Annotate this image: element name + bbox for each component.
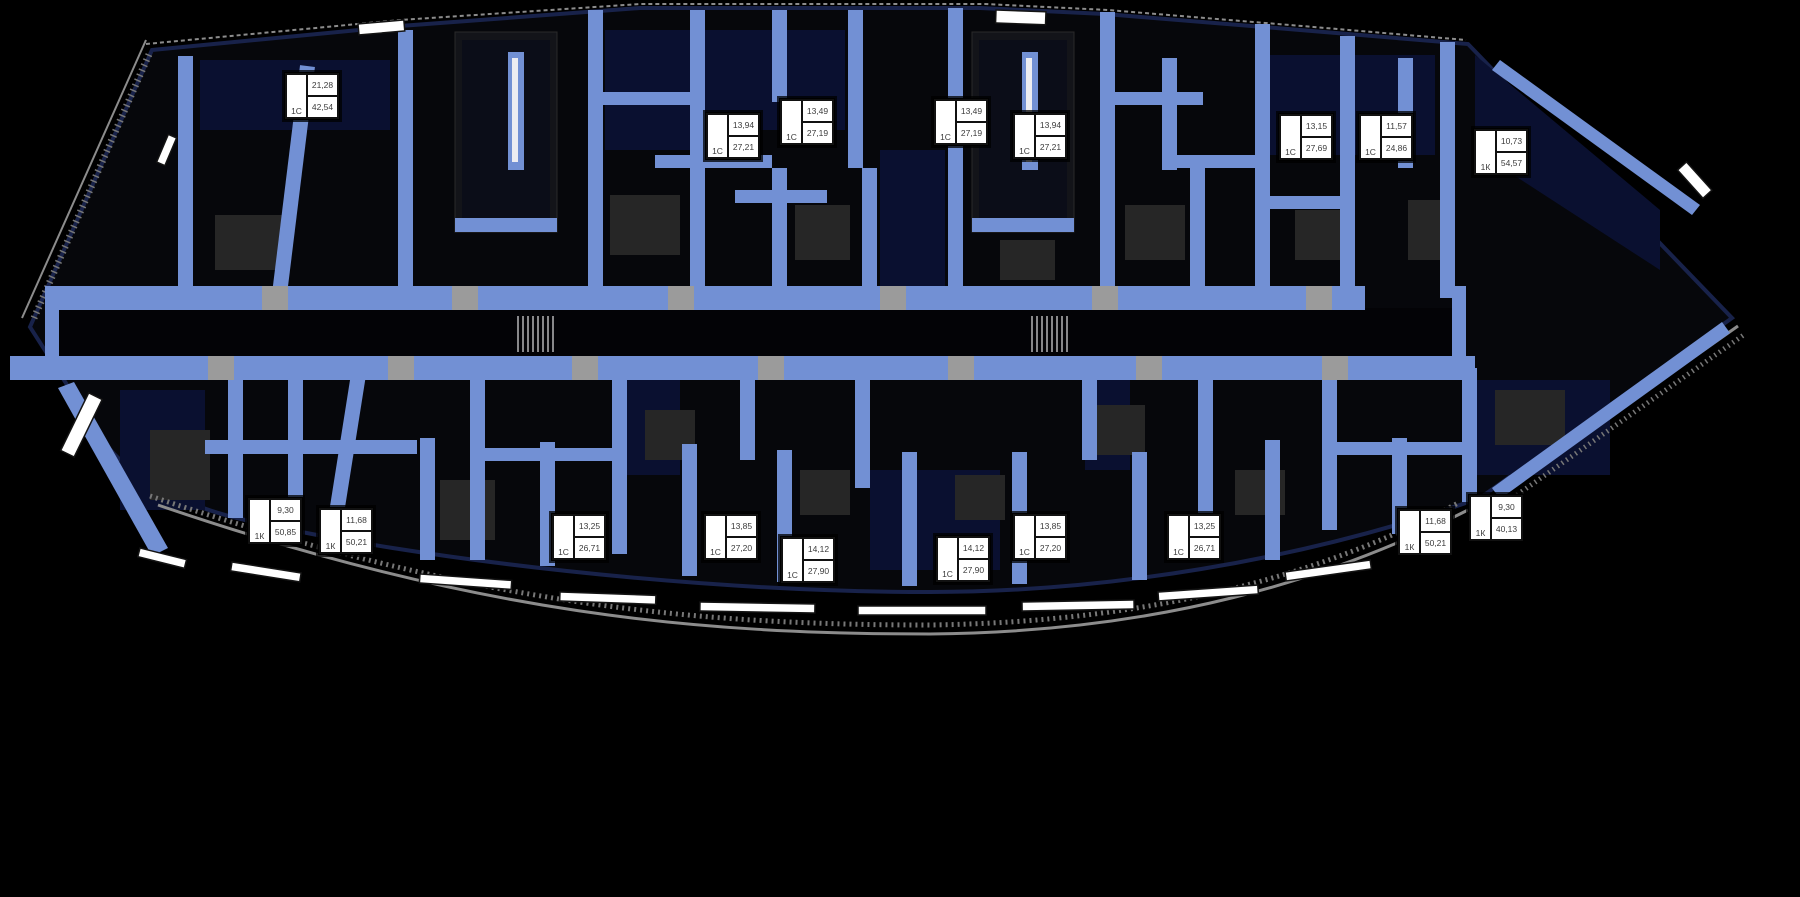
unit-total-area: 26,71	[575, 538, 604, 558]
unit-label[interactable]: 1К 10,73 54,57	[1473, 128, 1529, 176]
unit-type: 1К	[1400, 511, 1419, 553]
unit-total-area: 27,20	[1036, 538, 1065, 558]
unit-room-area: 21,28	[308, 75, 337, 95]
unit-room-area: 13,85	[727, 516, 756, 536]
unit-label[interactable]: 1С 21,28 42,54	[284, 72, 340, 120]
unit-total-area: 27,20	[727, 538, 756, 558]
unit-room-area: 13,94	[1036, 115, 1065, 135]
unit-label[interactable]: 1К 9,30 50,85	[247, 497, 303, 545]
unit-total-area: 26,71	[1190, 538, 1219, 558]
unit-type: 1К	[1471, 497, 1490, 539]
unit-label[interactable]: 1С 13,85 27,20	[703, 513, 759, 561]
unit-type: 1К	[321, 510, 340, 552]
unit-label[interactable]: 1С 14,12 27,90	[935, 535, 991, 583]
unit-room-area: 11,68	[1421, 511, 1450, 531]
unit-label[interactable]: 1С 14,12 27,90	[780, 536, 836, 584]
unit-type: 1С	[554, 516, 573, 558]
unit-label[interactable]: 1К 9,30 40,13	[1468, 494, 1524, 542]
unit-room-area: 13,85	[1036, 516, 1065, 536]
unit-total-area: 27,21	[729, 137, 758, 157]
unit-total-area: 27,90	[959, 560, 988, 580]
unit-room-area: 9,30	[1492, 497, 1521, 517]
unit-type: 1С	[938, 538, 957, 580]
unit-room-area: 13,94	[729, 115, 758, 135]
unit-type: 1С	[1015, 516, 1034, 558]
unit-label[interactable]: 1С 13,49 27,19	[779, 98, 835, 146]
unit-total-area: 27,90	[804, 561, 833, 581]
unit-room-area: 9,30	[271, 500, 300, 520]
unit-label[interactable]: 1К 11,68 50,21	[318, 507, 374, 555]
unit-type: 1К	[250, 500, 269, 542]
unit-type: 1К	[1476, 131, 1495, 173]
unit-type: 1С	[287, 75, 306, 117]
unit-total-area: 27,69	[1302, 138, 1331, 158]
unit-total-area: 40,13	[1492, 519, 1521, 539]
unit-type: 1С	[1015, 115, 1034, 157]
unit-room-area: 10,73	[1497, 131, 1526, 151]
unit-total-area: 54,57	[1497, 153, 1526, 173]
unit-room-area: 14,12	[804, 539, 833, 559]
unit-total-area: 50,85	[271, 522, 300, 542]
unit-label[interactable]: 1С 13,85 27,20	[1012, 513, 1068, 561]
unit-label[interactable]: 1С 13,25 26,71	[1166, 513, 1222, 561]
unit-type: 1С	[1361, 116, 1380, 158]
unit-room-area: 14,12	[959, 538, 988, 558]
unit-total-area: 24,86	[1382, 138, 1411, 158]
unit-total-area: 27,21	[1036, 137, 1065, 157]
unit-type: 1С	[708, 115, 727, 157]
unit-total-area: 27,19	[803, 123, 832, 143]
unit-room-area: 13,15	[1302, 116, 1331, 136]
unit-label[interactable]: 1С 13,15 27,69	[1278, 113, 1334, 161]
floor-plan-canvas: 1С 21,28 42,54 1С 13,94 27,21 1С 13,49 2…	[0, 0, 1800, 897]
unit-label[interactable]: 1С 11,57 24,86	[1358, 113, 1414, 161]
unit-label[interactable]: 1С 13,94 27,21	[705, 112, 761, 160]
unit-type: 1С	[706, 516, 725, 558]
unit-label[interactable]: 1К 11,68 50,21	[1397, 508, 1453, 556]
unit-room-area: 11,68	[342, 510, 371, 530]
unit-label[interactable]: 1С 13,25 26,71	[551, 513, 607, 561]
unit-room-area: 13,25	[1190, 516, 1219, 536]
unit-room-area: 13,49	[957, 101, 986, 121]
unit-type: 1С	[1281, 116, 1300, 158]
unit-room-area: 13,25	[575, 516, 604, 536]
unit-room-area: 11,57	[1382, 116, 1411, 136]
unit-total-area: 42,54	[308, 97, 337, 117]
unit-type: 1С	[782, 101, 801, 143]
unit-labels-layer: 1С 21,28 42,54 1С 13,94 27,21 1С 13,49 2…	[0, 0, 1800, 897]
unit-type: 1С	[936, 101, 955, 143]
unit-type: 1С	[783, 539, 802, 581]
unit-total-area: 50,21	[342, 532, 371, 552]
unit-label[interactable]: 1С 13,49 27,19	[933, 98, 989, 146]
unit-label[interactable]: 1С 13,94 27,21	[1012, 112, 1068, 160]
unit-type: 1С	[1169, 516, 1188, 558]
unit-total-area: 50,21	[1421, 533, 1450, 553]
unit-total-area: 27,19	[957, 123, 986, 143]
unit-room-area: 13,49	[803, 101, 832, 121]
